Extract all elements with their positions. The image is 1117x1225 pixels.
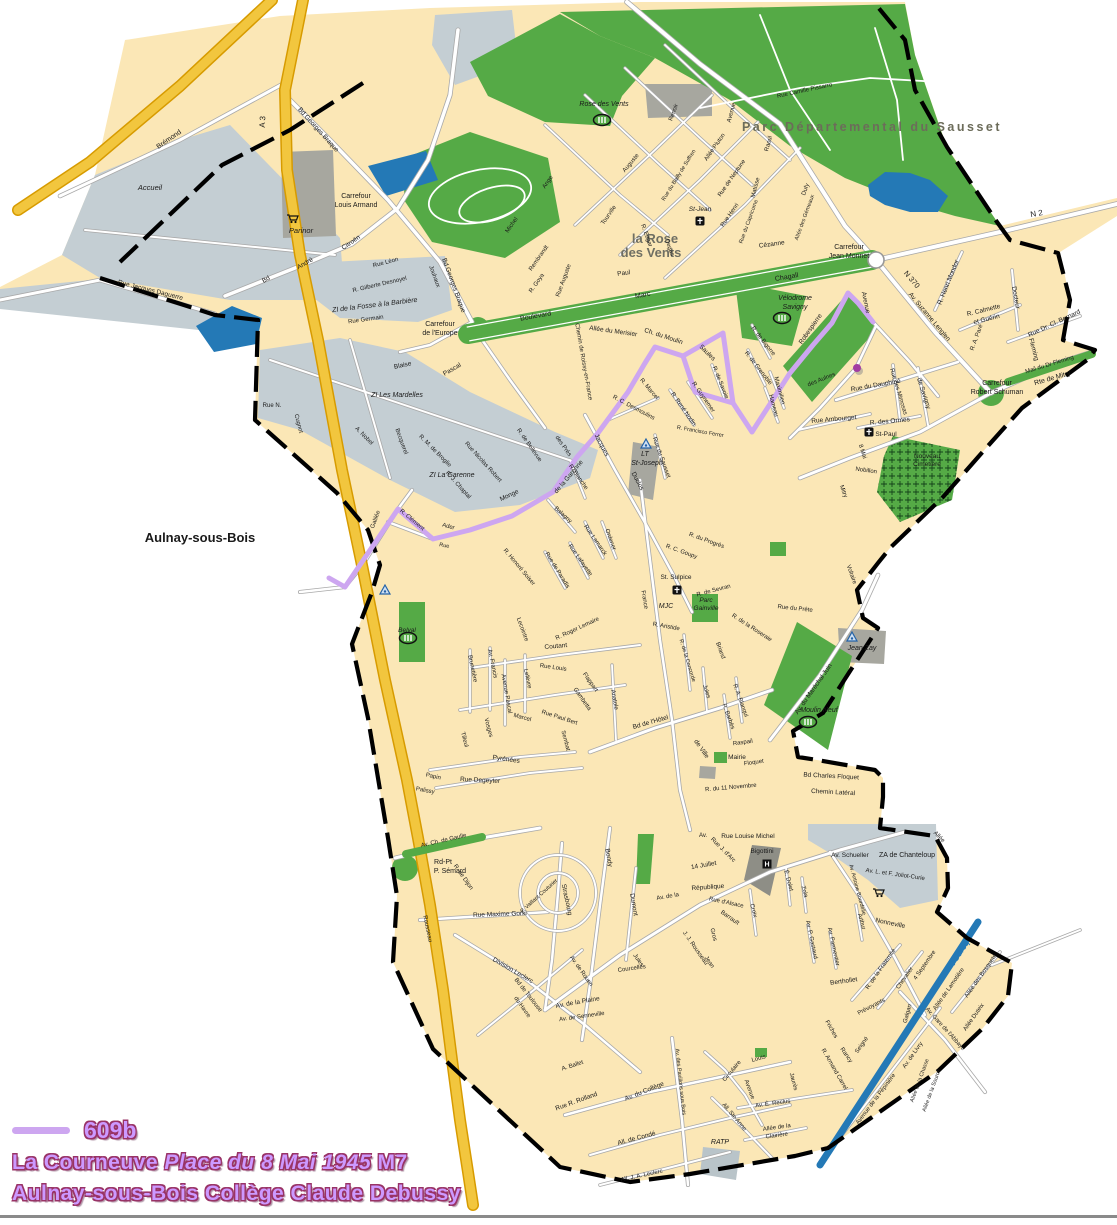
map-label: de l'Europe (422, 330, 457, 337)
map-label: Parc (699, 597, 713, 604)
park-area (770, 542, 786, 556)
route-terminus-dot (853, 364, 861, 372)
map-label: Louis Armand (335, 202, 378, 209)
map-label: Nouveau (914, 453, 940, 460)
map-label: RATP (711, 1139, 729, 1146)
map-label: ZI Les Mardelles (370, 392, 423, 399)
map-label: Rue Louise Michel (721, 833, 775, 840)
map-label: Carrefour (982, 380, 1012, 387)
map-label: Av. (699, 833, 707, 839)
map-page: HParc Départemental du Saussetla Rosedes… (0, 0, 1117, 1225)
legend-route-row: 609b (12, 1116, 461, 1144)
map-label: Carrefour (341, 193, 371, 200)
map-label: MJC (659, 603, 674, 610)
map-label: Moulin Neuf (800, 707, 838, 714)
hospital-icon-h: H (764, 862, 769, 869)
map-label: Savigny (783, 304, 808, 311)
industrial-zone (645, 84, 712, 118)
map-label: A 3 (258, 115, 268, 128)
map-label: Aulnay-sous-Bois (145, 530, 256, 545)
map-label: Gainville (694, 605, 719, 612)
industrial-zone (699, 766, 716, 779)
map-label: ZA de Chanteloup (879, 852, 935, 859)
map-label: Parc Départemental du Sausset (742, 120, 1002, 134)
park-area (714, 752, 727, 763)
roundabout (868, 252, 884, 268)
map-label: Rd-Pt (434, 859, 452, 866)
map-label: St-Jean (689, 206, 712, 213)
map-label: Av. Schueller (831, 852, 870, 859)
route-legend: 609b La Courneuve Place du 8 Mai 1945 M7… (12, 1116, 461, 1206)
school-icon-dot (384, 590, 386, 592)
map-label: Rue N. (263, 403, 282, 409)
map-label: Robert Schuman (971, 389, 1024, 396)
map-label: Parinor (289, 226, 314, 235)
map-label: Carrefour (834, 244, 864, 251)
map-label: St-Paul (875, 431, 897, 438)
legend-destination: Aulnay-sous-Bois Collège Claude Debussy (12, 1182, 461, 1206)
map-label: Cimetière (913, 461, 941, 468)
map-label: Carrefour (425, 321, 455, 328)
industrial-zone (700, 1147, 740, 1180)
map-label: Jean Zay (847, 645, 877, 652)
map-label: Jean Monnet (829, 253, 870, 260)
route-number: 609b (84, 1117, 136, 1144)
map-label: Bigottini (750, 848, 773, 855)
map-label: Rose des Vents (579, 101, 629, 108)
map-label: Accueil (137, 183, 163, 192)
bottom-rule (0, 1215, 1117, 1218)
origin-city: La Courneuve (12, 1151, 158, 1174)
school-icon-dot (851, 637, 853, 639)
origin-stop: Place du 8 Mai 1945 (164, 1151, 371, 1174)
legend-origin: La Courneuve Place du 8 Mai 1945 M7 (12, 1151, 461, 1175)
map-label: Vélodrome (778, 295, 812, 302)
map-label: LT (641, 451, 649, 458)
school-icon-dot (645, 444, 647, 446)
origin-metro-badge: M7 (378, 1151, 408, 1174)
route-line-swatch (12, 1127, 70, 1134)
map-label: Mairie (728, 754, 746, 761)
aulnay-map-canvas: HParc Départemental du Saussetla Rosedes… (0, 0, 1117, 1225)
map-label: St-Joseph (631, 460, 663, 467)
map-label: St. Sulpice (660, 574, 691, 581)
map-label: Belval (398, 627, 416, 634)
